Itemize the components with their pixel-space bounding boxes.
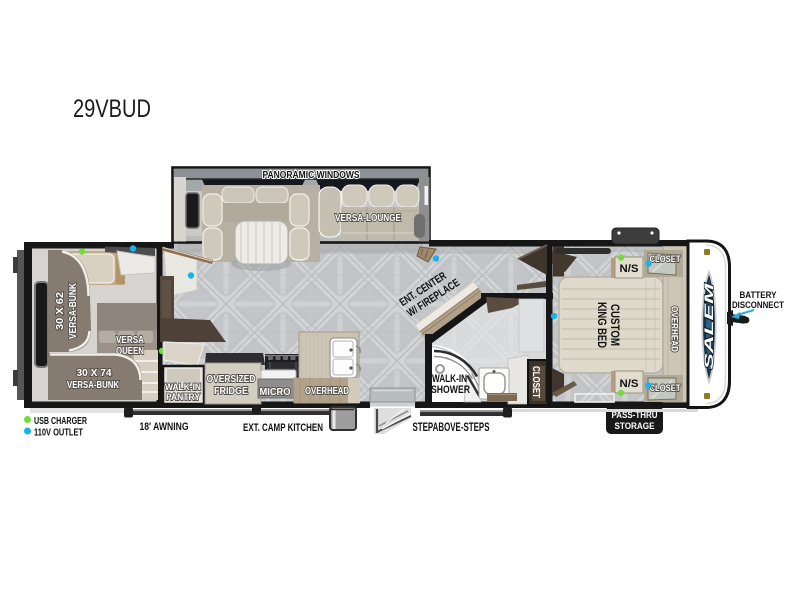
svg-text:KING BED: KING BED xyxy=(595,302,607,348)
svg-text:USB CHARGER: USB CHARGER xyxy=(34,416,88,427)
svg-text:DISCONNECT: DISCONNECT xyxy=(732,300,784,310)
svg-text:STEPABOVE-STEPS: STEPABOVE-STEPS xyxy=(413,422,490,434)
svg-text:MICRO: MICRO xyxy=(260,386,291,398)
svg-text:VERSA-LOUNGE: VERSA-LOUNGE xyxy=(335,212,401,224)
svg-text:VERSA-BUNK: VERSA-BUNK xyxy=(67,379,119,391)
svg-text:SHOWER: SHOWER xyxy=(431,384,470,396)
svg-text:VERSA-BUNK: VERSA-BUNK xyxy=(67,283,79,339)
svg-text:OVERSIZED: OVERSIZED xyxy=(207,373,256,385)
svg-text:SALEM: SALEM xyxy=(704,283,716,370)
svg-text:OVERHEAD: OVERHEAD xyxy=(670,306,680,352)
svg-text:CLOSET: CLOSET xyxy=(650,254,681,265)
svg-text:N/S: N/S xyxy=(620,263,639,275)
svg-text:18' AWNING: 18' AWNING xyxy=(140,421,189,433)
svg-text:FRIDGE: FRIDGE xyxy=(214,385,248,397)
svg-text:CLOSET: CLOSET xyxy=(530,366,541,398)
svg-text:29VBUD: 29VBUD xyxy=(73,95,151,123)
svg-text:STORAGE: STORAGE xyxy=(615,421,655,432)
svg-text:PANTRY: PANTRY xyxy=(166,392,201,403)
svg-text:BATTERY: BATTERY xyxy=(740,290,777,300)
svg-text:OVERHEAD: OVERHEAD xyxy=(305,385,349,397)
svg-text:CUSTOM: CUSTOM xyxy=(608,304,620,346)
svg-text:30 X 62: 30 X 62 xyxy=(54,292,66,330)
svg-text:110V OUTLET: 110V OUTLET xyxy=(34,428,83,439)
svg-text:EXT. CAMP KITCHEN: EXT. CAMP KITCHEN xyxy=(243,422,323,434)
svg-text:30 X 74: 30 X 74 xyxy=(77,367,112,379)
svg-text:CLOSET: CLOSET xyxy=(650,383,681,394)
svg-text:PANORAMIC WINDOWS: PANORAMIC WINDOWS xyxy=(263,170,360,181)
svg-text:N/S: N/S xyxy=(620,378,639,390)
